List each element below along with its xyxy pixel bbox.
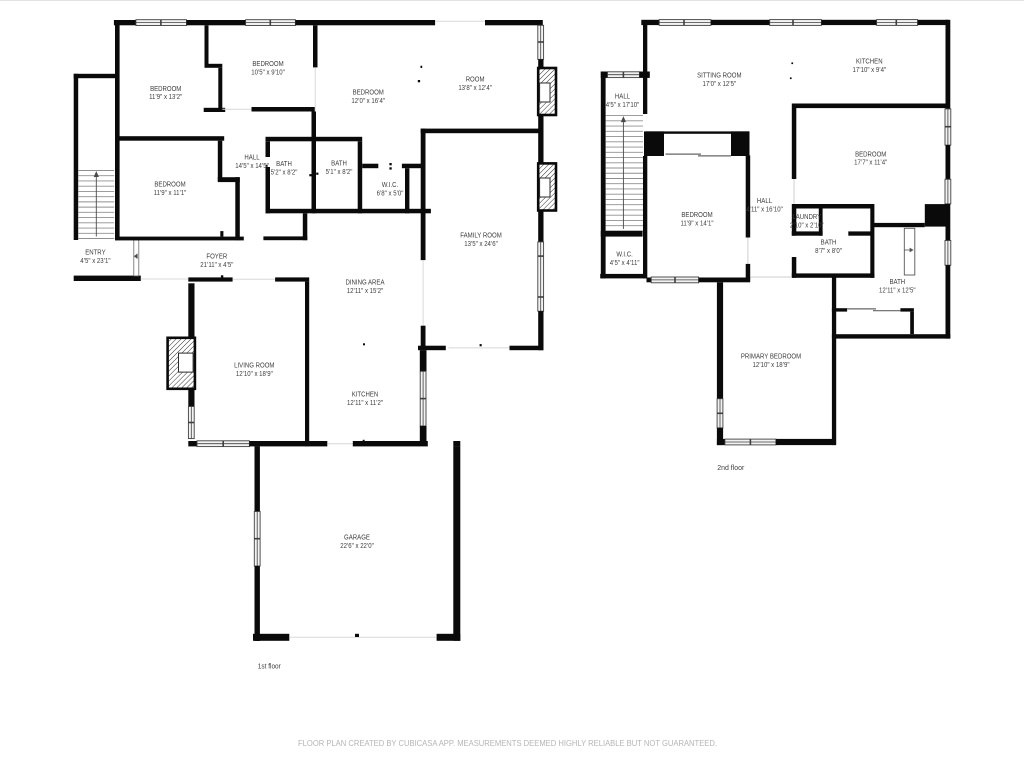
svg-text:HALL: HALL [757, 198, 772, 206]
svg-text:HALL: HALL [244, 154, 259, 162]
svg-text:11’9" x 11’1": 11’9" x 11’1" [154, 189, 187, 197]
svg-text:4’5" x 4’11": 4’5" x 4’11" [610, 259, 640, 267]
svg-text:FAMILY ROOM: FAMILY ROOM [460, 232, 501, 240]
svg-text:BEDROOM: BEDROOM [855, 151, 886, 159]
svg-text:DINING AREA: DINING AREA [345, 279, 385, 287]
svg-text:SITTING ROOM: SITTING ROOM [697, 72, 741, 80]
svg-text:10’5" x 9’10": 10’5" x 9’10" [251, 69, 285, 77]
svg-text:BATH: BATH [276, 161, 292, 169]
svg-text:FOYER: FOYER [206, 253, 227, 261]
svg-text:LAUNDRY: LAUNDRY [792, 214, 821, 222]
svg-text:GARAGE: GARAGE [344, 534, 370, 542]
svg-text:6’8" x 5’0": 6’8" x 5’0" [377, 190, 404, 198]
svg-text:BEDROOM: BEDROOM [681, 212, 712, 220]
svg-text:17’0" x 12’5": 17’0" x 12’5" [703, 80, 737, 88]
svg-text:2nd floor: 2nd floor [717, 463, 745, 472]
svg-text:BEDROOM: BEDROOM [150, 86, 181, 94]
svg-text:12’11" x 12’5": 12’11" x 12’5" [879, 287, 916, 295]
svg-text:22’6" x 22’0": 22’6" x 22’0" [340, 542, 374, 550]
svg-text:PRIMARY BEDROOM: PRIMARY BEDROOM [741, 353, 801, 361]
svg-text:BEDROOM: BEDROOM [154, 181, 185, 189]
svg-text:HALL: HALL [615, 93, 630, 101]
svg-text:17’10" x 9’4": 17’10" x 9’4" [853, 66, 887, 74]
svg-text:1st floor: 1st floor [258, 661, 281, 670]
svg-text:11’9" x 13’2": 11’9" x 13’2" [149, 94, 183, 102]
svg-text:ROOM: ROOM [466, 76, 485, 84]
svg-text:13’5" x 24’6": 13’5" x 24’6" [464, 240, 498, 248]
svg-text:12’11" x 15’2": 12’11" x 15’2" [347, 287, 384, 295]
svg-text:BATH: BATH [331, 160, 347, 168]
svg-text:12’11" x 11’2": 12’11" x 11’2" [347, 399, 384, 407]
svg-text:KITCHEN: KITCHEN [352, 391, 379, 399]
svg-text:5’2" x 8’2": 5’2" x 8’2" [271, 169, 298, 177]
svg-text:BEDROOM: BEDROOM [353, 89, 384, 97]
svg-text:21’11" x 4’5": 21’11" x 4’5" [200, 261, 234, 269]
svg-text:BEDROOM: BEDROOM [252, 61, 283, 69]
svg-text:W.I.C.: W.I.C. [616, 251, 633, 259]
svg-text:FLOOR PLAN CREATED BY CUBICASA: FLOOR PLAN CREATED BY CUBICASA APP. MEAS… [298, 739, 717, 748]
svg-text:12’10" x 18’9": 12’10" x 18’9" [236, 370, 274, 378]
svg-text:12’10" x 18’9": 12’10" x 18’9" [753, 361, 791, 369]
svg-text:4’5" x 17’10": 4’5" x 17’10" [606, 101, 640, 109]
svg-text:ENTRY: ENTRY [85, 249, 106, 257]
svg-text:W.I.C.: W.I.C. [382, 182, 399, 190]
svg-text:12’0" x 16’4": 12’0" x 16’4" [351, 97, 385, 105]
svg-text:5’1" x 8’2": 5’1" x 8’2" [326, 168, 353, 176]
svg-text:17’7" x 11’4": 17’7" x 11’4" [854, 159, 888, 167]
svg-text:2’10" x 2’10": 2’10" x 2’10" [790, 222, 824, 230]
svg-text:4’11" x 16’10": 4’11" x 16’10" [746, 206, 783, 214]
svg-text:11’9" x 14’1": 11’9" x 14’1" [680, 220, 714, 228]
svg-text:BATH: BATH [821, 239, 837, 247]
svg-text:8’7" x 8’0": 8’7" x 8’0" [815, 247, 842, 255]
svg-text:LIVING ROOM: LIVING ROOM [234, 362, 274, 370]
svg-text:13’8" x 12’4": 13’8" x 12’4" [458, 84, 492, 92]
svg-text:BATH: BATH [889, 279, 905, 287]
svg-text:4’5" x 23’1": 4’5" x 23’1" [80, 257, 111, 265]
svg-text:KITCHEN: KITCHEN [856, 58, 883, 66]
svg-text:14’5" x 14’5": 14’5" x 14’5" [235, 162, 269, 170]
